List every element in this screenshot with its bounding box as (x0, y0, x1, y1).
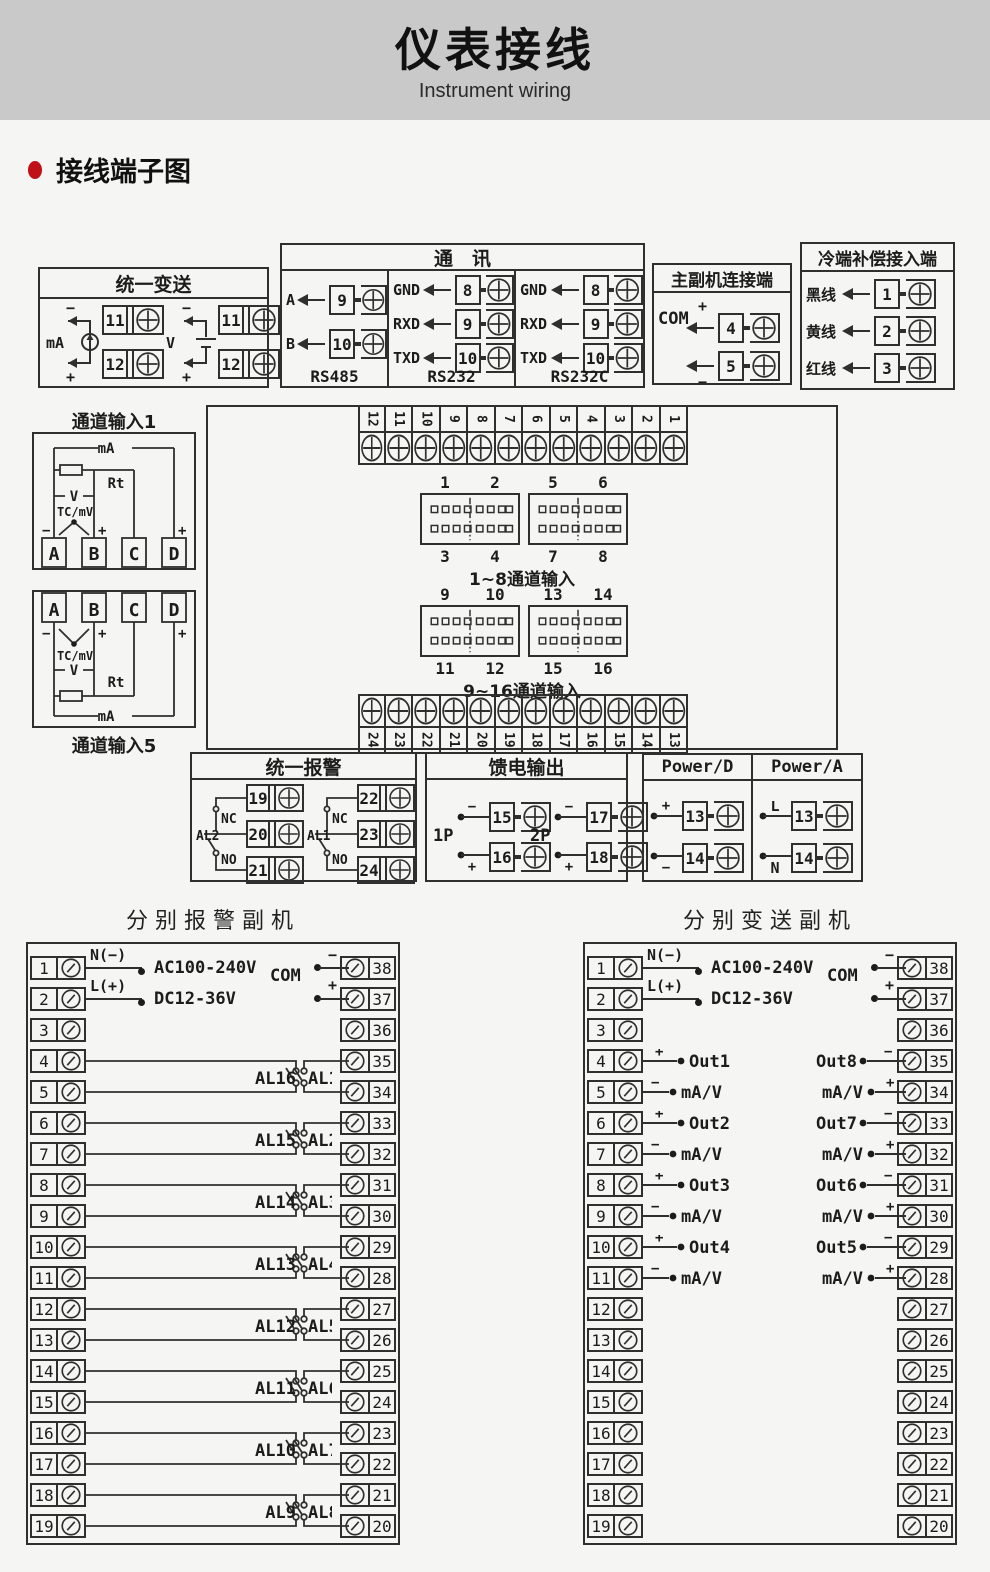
transmit-slave-right-groups: − Out8 + mA/V − Out7 + mA/V (585, 1049, 955, 1297)
svg-text:AL14: AL14 (255, 1193, 296, 1213)
analog-out-group: − Out5 + mA/V (585, 1235, 955, 1297)
screw-terminal-icon (250, 349, 280, 379)
screw-terminal-icon (633, 694, 661, 726)
svg-text:V: V (166, 334, 175, 352)
screw-terminal-icon (615, 1328, 643, 1352)
cold-row: 黑线 1 (802, 279, 953, 309)
alarm-slave-right-groups: AL16 AL15 (28, 1049, 398, 1545)
pin-labels: 1256 (420, 473, 628, 492)
screw-terminal-icon (551, 694, 579, 726)
feed-group-label: 2P (530, 826, 550, 846)
alarm-relay-group: AL13 (28, 1235, 398, 1297)
terminal: 14 (587, 1359, 643, 1383)
screw-terminal-icon (486, 275, 514, 305)
svg-text:AL15: AL15 (255, 1131, 296, 1151)
svg-text:AL10: AL10 (255, 1441, 296, 1461)
terminal: 23 (357, 820, 415, 848)
terminal: 21 (246, 856, 304, 884)
svg-text:+: + (182, 368, 191, 385)
screw-terminal-icon (897, 1390, 925, 1414)
ch1-box: mA Rt V TC/mV − + + A B C D (32, 432, 196, 570)
screw-terminal-icon (906, 353, 936, 383)
svg-text:mA: mA (46, 334, 64, 352)
svg-text:NO: NO (221, 853, 237, 868)
screw-terminal-icon (276, 784, 304, 812)
power-row: N 14 (757, 841, 853, 875)
terminal: 24 (358, 694, 386, 754)
screw-terminal-icon (897, 1359, 925, 1383)
screw-terminal-icon (468, 433, 496, 465)
alarm-switch: AL2 NC NO (196, 784, 246, 888)
screw-terminal-icon (441, 694, 469, 726)
svg-text:+: + (98, 523, 106, 539)
screw-terminal-icon (578, 694, 606, 726)
screw-terminal-icon (386, 433, 414, 465)
cold-row: 红线 3 (802, 353, 953, 383)
power-boxes: Power/D + 13 − 14 Power/A (642, 753, 863, 882)
screw-terminal-icon (521, 842, 551, 872)
cold-row: 黄线 2 (802, 316, 953, 346)
screw-terminal-icon (387, 784, 415, 812)
screw-terminal-icon (714, 801, 744, 831)
svg-text:Out5: Out5 (816, 1238, 857, 1258)
master-slave-box: 主副机连接端 COM + 4 5 − (652, 263, 792, 385)
unified-transmit-title: 统一变送 (40, 269, 267, 299)
screw-terminal-icon (750, 351, 780, 381)
left-arrow-icon (844, 367, 870, 369)
terminal: 2 (30, 987, 86, 1011)
terminal: 12 (358, 405, 386, 465)
terminal: 1 (587, 956, 643, 980)
screw-terminal-icon (551, 433, 579, 465)
svg-text:TC/mV: TC/mV (57, 649, 93, 663)
left-arrow-icon (425, 357, 451, 359)
svg-text:AL1: AL1 (307, 829, 331, 844)
terminal: 1 (661, 405, 689, 465)
svg-text:AL11: AL11 (255, 1379, 296, 1399)
svg-text:C: C (129, 600, 140, 621)
screw-terminal-icon (358, 433, 386, 465)
analog-out-group: − Out8 + mA/V (585, 1049, 955, 1111)
transmit-ma-wiring: − mA + (46, 301, 102, 385)
screw-terminal-icon (387, 856, 415, 884)
terminal: 13 (661, 694, 689, 754)
svg-text:+: + (886, 1075, 894, 1091)
svg-text:+: + (886, 1199, 894, 1215)
transmit-slave-box: 1 2 3 4 5 6 7 8 (583, 942, 957, 1545)
terminal: 4 (578, 405, 606, 465)
comm-col-rs232c: GND 8 RXD 9 TXD 10 RS (514, 271, 643, 388)
terminal: 11 (218, 305, 280, 335)
terminal: 23 (386, 694, 414, 754)
instrument-wiring-page: 仪表接线 Instrument wiring 接线端子图 统一变送 − mA +… (0, 0, 990, 1572)
pin-labels: 11121516 (420, 659, 628, 678)
ch1-wiring: mA Rt V TC/mV − + + A B C D (34, 434, 194, 568)
screw-terminal-icon (496, 694, 524, 726)
svg-text:−: − (182, 301, 191, 317)
screw-terminal-icon (614, 275, 643, 305)
analog-out-group: − Out7 + mA/V (585, 1111, 955, 1173)
svg-text:A: A (49, 544, 60, 565)
svg-text:AL16: AL16 (255, 1069, 296, 1089)
svg-text:+: + (66, 368, 75, 385)
svg-text:−: − (565, 802, 573, 815)
alarm-relay-group: AL16 (28, 1049, 398, 1111)
svg-text:−: − (662, 860, 670, 875)
unified-alarm-title: 统一报警 (192, 754, 415, 780)
terminal: 18 (523, 694, 551, 754)
terminal: 17 (551, 694, 579, 754)
screw-terminal-icon (633, 433, 661, 465)
terminal-strip-bottom: 24 23 22 21 20 19 18 17 (358, 694, 688, 754)
terminal: 5 (551, 405, 579, 465)
screw-terminal-icon (897, 1297, 925, 1321)
master-row: 4 (684, 313, 780, 343)
svg-text:B: B (89, 600, 100, 621)
screw-terminal-icon (134, 349, 164, 379)
alarm-slave-title: 分别报警副机 (26, 903, 400, 935)
terminal: 10 (413, 405, 441, 465)
screw-terminal-icon (58, 956, 86, 980)
ch1-label: 通道输入1 (32, 408, 196, 434)
svg-text:+: + (565, 859, 573, 874)
terminal: 14 (633, 694, 661, 754)
terminal: 36 (897, 1018, 953, 1042)
ch5-wiring: A B C D − + + TC/mV V Rt mA (34, 592, 194, 726)
svg-text:N: N (770, 859, 779, 875)
screw-terminal-icon (897, 1514, 925, 1538)
screw-terminal-icon (496, 433, 524, 465)
screw-terminal-icon (615, 956, 643, 980)
svg-text:mA/V: mA/V (822, 1145, 863, 1165)
screw-terminal-icon (386, 694, 414, 726)
svg-text:Out6: Out6 (816, 1176, 857, 1196)
screw-terminal-icon (615, 1421, 643, 1445)
svg-text:−: − (884, 1173, 892, 1184)
terminal: 12 (102, 349, 164, 379)
screw-terminal-icon (468, 694, 496, 726)
transmit-slave-title: 分别变送副机 (583, 903, 957, 935)
alarm-relay-group: AL10 (28, 1421, 398, 1483)
left-arrow-icon (688, 327, 714, 329)
screw-terminal-icon (134, 305, 164, 335)
svg-text:A: A (49, 600, 60, 621)
terminal: 19 (246, 784, 304, 812)
terminal: 21 (897, 1483, 953, 1507)
screw-terminal-icon (615, 1514, 643, 1538)
terminal: 12 (587, 1297, 643, 1321)
cold-junction-title: 冷端补偿接入端 (802, 244, 953, 272)
terminal: 19 (496, 694, 524, 754)
terminal: 16 (587, 1421, 643, 1445)
power-d-title: Power/D (644, 755, 751, 781)
left-arrow-icon (688, 365, 714, 367)
svg-text:AL13: AL13 (255, 1255, 296, 1275)
feed-output-box: 馈电输出 1P − 15 + 16 2P − 17 (425, 752, 628, 882)
bullet-icon (28, 161, 42, 179)
svg-text:Out8: Out8 (816, 1052, 857, 1072)
page-subtitle: Instrument wiring (0, 80, 990, 103)
screw-terminal-icon (897, 1018, 925, 1042)
svg-text:mA/V: mA/V (822, 1207, 863, 1227)
master-slave-title: 主副机连接端 (654, 265, 790, 293)
comm-columns: A 9 B 10 RS485 GND (282, 271, 643, 388)
terminal: 21 (441, 694, 469, 754)
comm-row: B 10 (282, 329, 387, 359)
terminal: 15 (587, 1390, 643, 1414)
screw-terminal-icon (578, 433, 606, 465)
comm-row: GND 8 (389, 275, 514, 305)
terminal: 22 (413, 694, 441, 754)
power-row: − 14 (648, 841, 744, 875)
screw-terminal-icon (361, 329, 387, 359)
terminal-strip-top: 12 11 10 9 8 7 6 5 (358, 405, 688, 465)
page-title: 仪表接线 (0, 14, 990, 80)
screw-terminal-icon (897, 1483, 925, 1507)
terminal: 9 (441, 405, 469, 465)
terminal: 27 (897, 1297, 953, 1321)
screw-terminal-icon (661, 694, 689, 726)
screw-terminal-icon (615, 1018, 643, 1042)
screw-terminal-icon (276, 820, 304, 848)
svg-text:V: V (70, 489, 79, 505)
page-header: 仪表接线 Instrument wiring (0, 0, 990, 120)
terminal: 22 (357, 784, 415, 812)
screw-terminal-icon (361, 285, 387, 315)
screw-terminal-icon (906, 279, 936, 309)
terminal: 36 (340, 1018, 396, 1042)
svg-text:TC/mV: TC/mV (57, 505, 93, 519)
power-a-title: Power/A (753, 755, 861, 781)
svg-text:+: + (178, 626, 186, 642)
terminal: 12 (218, 349, 280, 379)
screw-terminal-icon (906, 316, 936, 346)
terminal: 7 (496, 405, 524, 465)
comm-row: RXD 9 (389, 309, 514, 339)
comm-col-rs485: A 9 B 10 RS485 (282, 271, 387, 388)
screw-terminal-icon (615, 1390, 643, 1414)
svg-text:−: − (884, 1049, 892, 1060)
svg-text:V: V (70, 663, 79, 679)
screw-terminal-icon (413, 433, 441, 465)
left-arrow-icon (425, 323, 451, 325)
comm-row: GND 8 (516, 275, 643, 305)
svg-text:AL9: AL9 (265, 1503, 296, 1523)
terminal: 2 (587, 987, 643, 1011)
alarm-group-al2: AL2 NC NO 19 20 21 (196, 784, 304, 892)
alarm-slave-box: 1 2 3 4 5 6 7 8 (26, 942, 400, 1545)
svg-text:Out7: Out7 (816, 1114, 857, 1134)
comm-col-rs232: GND 8 RXD 9 TXD 10 RS (387, 271, 514, 388)
terminal: 3 (587, 1018, 643, 1042)
svg-text:−: − (884, 1235, 892, 1246)
left-arrow-icon (844, 293, 870, 295)
svg-text:NC: NC (221, 812, 237, 827)
screw-terminal-icon (750, 313, 780, 343)
alarm-group-al1: AL1 NC NO 22 23 24 (307, 784, 415, 892)
ch5-label: 通道输入5 (32, 732, 196, 758)
analog-out-group: − Out6 + mA/V (585, 1173, 955, 1235)
section-heading: 接线端子图 (28, 150, 191, 189)
unified-alarm-box: 统一报警 AL2 NC NO 19 20 (190, 752, 417, 882)
screw-terminal-icon (606, 694, 634, 726)
svg-text:−: − (42, 523, 50, 539)
alarm-relay-group: AL12 (28, 1297, 398, 1359)
ch5-box: A B C D − + + TC/mV V Rt mA (32, 590, 196, 728)
svg-text:−: − (42, 626, 50, 642)
transmit-v-wiring: − V + (162, 301, 218, 385)
terminal: 16 (578, 694, 606, 754)
alarm-relay-group: AL14 (28, 1173, 398, 1235)
left-arrow-icon (299, 299, 325, 301)
terminal: 2 (633, 405, 661, 465)
alarm-relay-group: AL15 (28, 1111, 398, 1173)
power-a-cell: Power/A L 13 N 14 (753, 755, 861, 880)
svg-text:mA/V: mA/V (822, 1083, 863, 1103)
svg-text:AL12: AL12 (255, 1317, 296, 1337)
screw-terminal-icon (823, 801, 853, 831)
svg-text:D: D (169, 544, 180, 565)
pin-labels: 3478 (420, 547, 628, 566)
screw-terminal-icon (441, 433, 469, 465)
svg-text:+: + (178, 523, 186, 539)
svg-text:+: + (98, 626, 106, 642)
left-arrow-icon (425, 289, 451, 291)
screw-terminal-icon (606, 433, 634, 465)
screw-terminal-icon (615, 1483, 643, 1507)
svg-text:+: + (886, 1261, 894, 1277)
comm-box: 通 讯 A 9 B 10 RS485 (280, 243, 645, 388)
comm-col-name: RS485 (282, 367, 387, 386)
section-label: 接线端子图 (56, 150, 191, 189)
svg-text:C: C (129, 544, 140, 565)
power-row: + 13 (648, 801, 744, 831)
terminal: 24 (897, 1390, 953, 1414)
svg-text:−: − (66, 301, 75, 317)
comm-row: A 9 (282, 285, 387, 315)
screw-terminal-icon (615, 1452, 643, 1476)
alarm-relay-group: AL9 (28, 1483, 398, 1545)
screw-terminal-icon (661, 433, 689, 465)
feed-row: + 18 (552, 840, 648, 874)
svg-text:L: L (770, 801, 779, 815)
terminal: 20 (468, 694, 496, 754)
svg-text:NC: NC (332, 812, 348, 827)
screw-terminal-icon (897, 1421, 925, 1445)
svg-text:mA/V: mA/V (822, 1269, 863, 1289)
svg-text:+: + (886, 1137, 894, 1153)
terminal: 8 (468, 405, 496, 465)
comm-col-name: RS232 (389, 367, 514, 386)
screw-terminal-icon (413, 694, 441, 726)
unified-transmit-box: 统一变送 − mA + 11 12 (38, 267, 269, 388)
svg-text:−: − (468, 802, 476, 815)
screw-terminal-icon (358, 694, 386, 726)
svg-text:Rt: Rt (108, 476, 125, 492)
screw-terminal-icon (897, 1328, 925, 1352)
terminal: 25 (897, 1359, 953, 1383)
terminal: 15 (606, 694, 634, 754)
terminal: 26 (897, 1328, 953, 1352)
terminal: 6 (523, 405, 551, 465)
comm-row: RXD 9 (516, 309, 643, 339)
terminal: 13 (587, 1328, 643, 1352)
terminal: 18 (587, 1483, 643, 1507)
terminal: 17 (587, 1452, 643, 1476)
alarm-switch: AL1 NC NO (307, 784, 357, 888)
screw-terminal-icon (340, 1018, 368, 1042)
svg-text:Rt: Rt (108, 675, 125, 691)
feed-row: − 17 (552, 802, 648, 832)
svg-text:D: D (169, 600, 180, 621)
cold-junction-box: 冷端补偿接入端 黑线 1 黄线 2 红线 3 (800, 242, 955, 390)
comm-title: 通 讯 (282, 245, 643, 271)
power-row: L 13 (757, 801, 853, 831)
screw-terminal-icon (615, 1297, 643, 1321)
left-arrow-icon (553, 357, 579, 359)
screw-terminal-icon (823, 843, 853, 873)
terminal: 11 (386, 405, 414, 465)
comm-col-name: RS232C (516, 367, 643, 386)
left-arrow-icon (844, 330, 870, 332)
screw-terminal-icon (897, 1452, 925, 1476)
terminal: 3 (30, 1018, 86, 1042)
connector-block (528, 493, 628, 545)
screw-terminal-icon (714, 843, 744, 873)
screw-terminal-icon (486, 309, 514, 339)
feed-group-label: 1P (433, 826, 453, 846)
connector-block (420, 605, 520, 657)
svg-text:NO: NO (332, 853, 348, 868)
terminal: 23 (897, 1421, 953, 1445)
connector-block (420, 493, 520, 545)
screw-terminal-icon (387, 820, 415, 848)
screw-terminal-icon (58, 987, 86, 1011)
svg-text:mA: mA (98, 709, 115, 725)
terminal: 11 (102, 305, 164, 335)
screw-terminal-icon (250, 305, 280, 335)
connector-block (528, 605, 628, 657)
main-channel-box: 12 11 10 9 8 7 6 5 (206, 405, 838, 750)
svg-text:AL2: AL2 (196, 829, 219, 844)
left-arrow-icon (553, 323, 579, 325)
terminal: 20 (897, 1514, 953, 1538)
svg-text:+: + (662, 801, 670, 814)
terminal: 20 (246, 820, 304, 848)
screw-terminal-icon (523, 694, 551, 726)
power-d-cell: Power/D + 13 − 14 (644, 755, 753, 880)
screw-terminal-icon (615, 1359, 643, 1383)
terminal: 3 (606, 405, 634, 465)
terminal: 1 (30, 956, 86, 980)
svg-text:B: B (89, 544, 100, 565)
left-arrow-icon (553, 289, 579, 291)
terminal: 19 (587, 1514, 643, 1538)
terminal: 24 (357, 856, 415, 884)
alarm-relay-group: AL11 (28, 1359, 398, 1421)
screw-terminal-icon (58, 1018, 86, 1042)
left-arrow-icon (299, 343, 325, 345)
screw-terminal-icon (615, 987, 643, 1011)
screw-terminal-icon (523, 433, 551, 465)
screw-terminal-icon (276, 856, 304, 884)
pin-labels: 9101314 (420, 585, 628, 604)
svg-text:+: + (468, 859, 476, 874)
svg-text:−: − (884, 1111, 892, 1122)
svg-text:mA: mA (98, 441, 115, 457)
screw-terminal-icon (614, 309, 643, 339)
terminal: 22 (897, 1452, 953, 1476)
